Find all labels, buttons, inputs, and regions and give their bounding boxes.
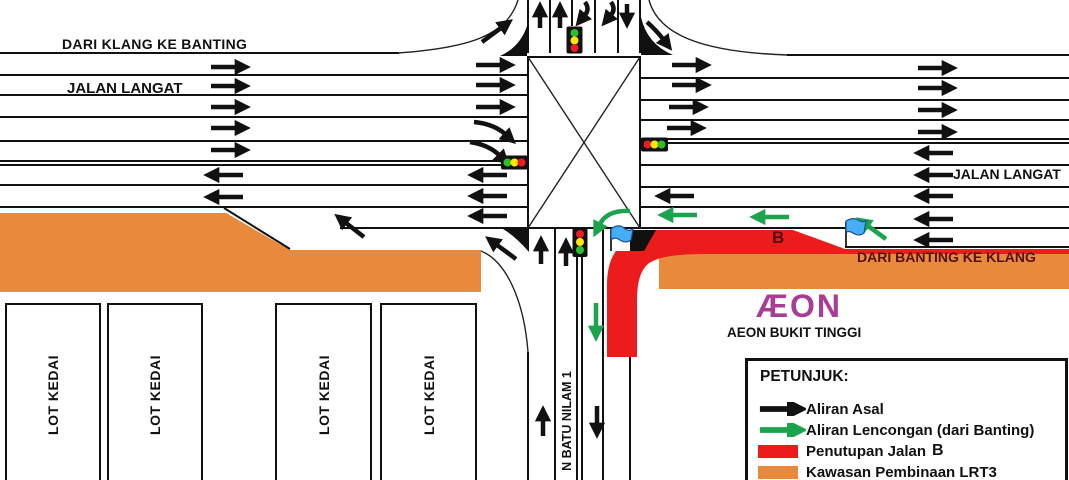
aeon-logo: ÆON bbox=[756, 288, 842, 325]
intersection-box bbox=[528, 57, 640, 228]
legend-item-diversion-flow: Aliran Lencongan (dari Banting) bbox=[748, 422, 1034, 438]
closure-point-label: B bbox=[772, 228, 784, 248]
black-arrow-icon bbox=[748, 402, 806, 416]
shop-lot-box-4: LOT KEDAI bbox=[380, 303, 477, 480]
road-name-jalan-langat-west: JALAN LANGAT bbox=[67, 80, 183, 97]
shop-lot-box-2: LOT KEDAI bbox=[107, 303, 203, 480]
shop-lot-label: LOT KEDAI bbox=[147, 355, 163, 435]
legend-title: PETUNJUK: bbox=[760, 368, 849, 386]
direction-label-banting-to-klang: DARI BANTING KE KLANG bbox=[857, 249, 1036, 265]
orange-swatch-icon bbox=[748, 466, 806, 479]
shop-lot-label: LOT KEDAI bbox=[420, 355, 436, 435]
shop-lot-label: LOT KEDAI bbox=[45, 355, 61, 435]
street-name-batu-nilam: N BATU NILAM 1 bbox=[556, 362, 578, 480]
traffic-light-west bbox=[501, 156, 528, 170]
closure-point-ref: B bbox=[932, 442, 944, 460]
traffic-light-east bbox=[641, 138, 668, 152]
legend-item-original-flow: Aliran Asal bbox=[748, 401, 884, 417]
shop-lot-label: LOT KEDAI bbox=[315, 355, 331, 435]
direction-label-klang-to-banting: DARI KLANG KE BANTING bbox=[62, 36, 247, 52]
shop-lot-box-3: LOT KEDAI bbox=[275, 303, 372, 480]
road-name-jalan-langat-east: JALAN LANGAT bbox=[953, 166, 1061, 182]
traffic-diversion-diagram: DARI KLANG KE BANTING JALAN LANGAT JALAN… bbox=[0, 0, 1069, 480]
traffic-light-north bbox=[567, 27, 583, 54]
green-arrow-icon bbox=[748, 423, 806, 437]
legend-item-road-closure: Penutupan Jalan B bbox=[748, 443, 944, 459]
flag-icon bbox=[846, 219, 866, 246]
red-swatch-icon bbox=[748, 445, 806, 458]
traffic-light-south bbox=[573, 228, 588, 257]
legend-item-construction-area: Kawasan Pembinaan LRT3 bbox=[748, 464, 997, 480]
legend-box: PETUNJUK: Aliran Asal Aliran Lencongan (… bbox=[745, 358, 1068, 480]
aeon-store-name: AEON BUKIT TINGGI bbox=[727, 325, 861, 340]
lrt3-construction-zone-west bbox=[0, 213, 481, 292]
shop-lot-box-1: LOT KEDAI bbox=[5, 303, 101, 480]
